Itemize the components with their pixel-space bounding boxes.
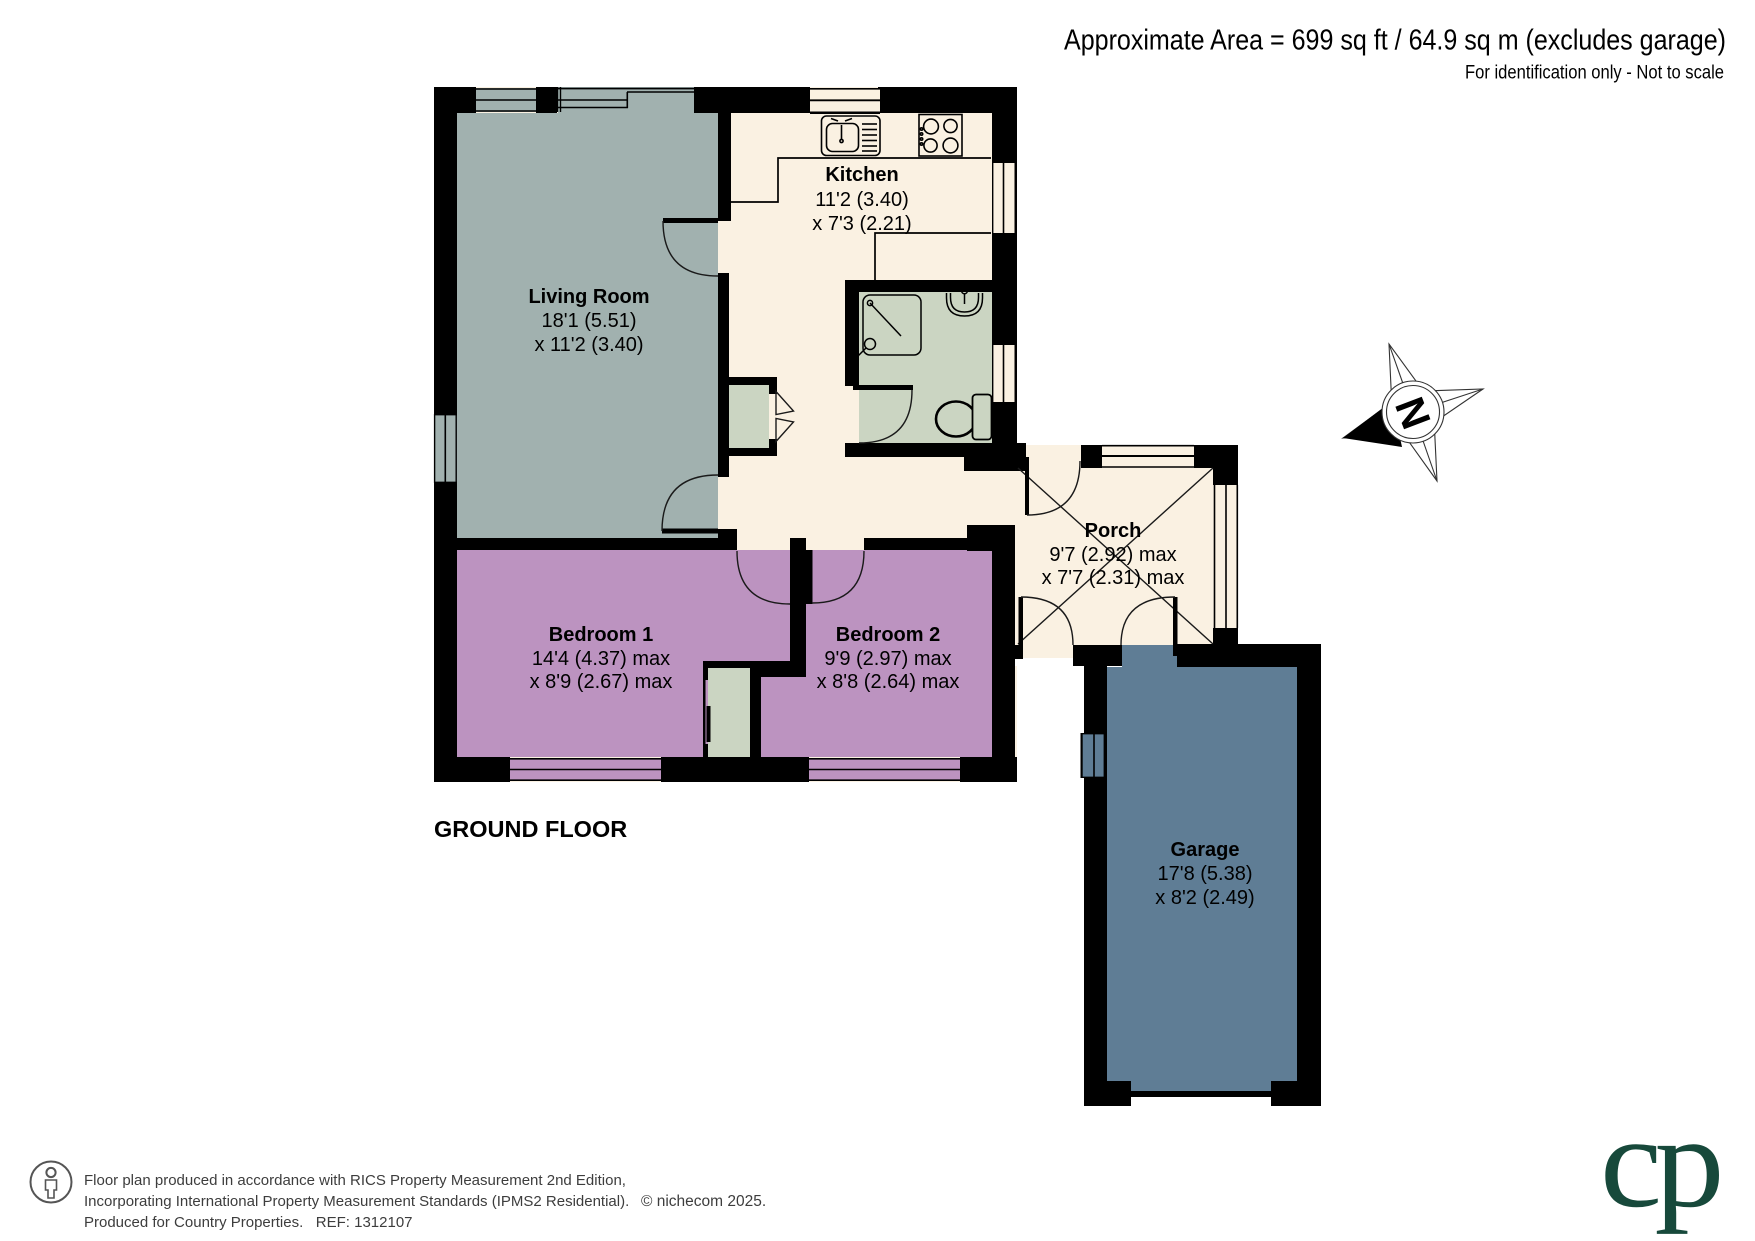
svg-text:11'2 (3.40): 11'2 (3.40): [815, 189, 909, 211]
svg-text:x 8'8 (2.64) max: x 8'8 (2.64) max: [817, 671, 960, 693]
svg-text:Incorporating International Pr: Incorporating International Property Mea…: [84, 1193, 629, 1210]
svg-text:Bedroom 1: Bedroom 1: [549, 624, 653, 646]
svg-text:cp: cp: [1600, 1090, 1720, 1235]
svg-text:Kitchen: Kitchen: [825, 164, 898, 186]
svg-text:Produced for Country Propertie: Produced for Country Properties. REF: 13…: [84, 1214, 413, 1231]
svg-text:Approximate Area = 699 sq ft /: Approximate Area = 699 sq ft / 64.9 sq m…: [1064, 25, 1726, 57]
svg-text:9'9 (2.97) max: 9'9 (2.97) max: [824, 648, 951, 670]
svg-text:x 7'7 (2.31) max: x 7'7 (2.31) max: [1042, 567, 1185, 589]
svg-text:Living Room: Living Room: [528, 286, 649, 308]
svg-text:17'8 (5.38): 17'8 (5.38): [1158, 863, 1253, 885]
svg-text:18'1 (5.51): 18'1 (5.51): [542, 310, 637, 332]
svg-text:x 8'2 (2.49): x 8'2 (2.49): [1155, 887, 1254, 909]
svg-text:x 11'2 (3.40): x 11'2 (3.40): [534, 334, 643, 356]
svg-text:x 7'3 (2.21): x 7'3 (2.21): [812, 213, 911, 235]
svg-text:Floor plan produced in accorda: Floor plan produced in accordance with R…: [84, 1172, 626, 1189]
svg-text:x 8'9 (2.67) max: x 8'9 (2.67) max: [530, 671, 673, 693]
svg-text:14'4 (4.37) max: 14'4 (4.37) max: [532, 648, 670, 670]
svg-text:© nichecom 2025.: © nichecom 2025.: [641, 1193, 766, 1210]
svg-text:Garage: Garage: [1171, 839, 1240, 861]
svg-text:For identification only - Not: For identification only - Not to scale: [1465, 63, 1724, 84]
svg-text:Bedroom 2: Bedroom 2: [836, 624, 940, 646]
svg-text:GROUND FLOOR: GROUND FLOOR: [434, 816, 627, 842]
svg-text:9'7 (2.92) max: 9'7 (2.92) max: [1049, 544, 1176, 566]
svg-text:Porch: Porch: [1085, 520, 1142, 542]
